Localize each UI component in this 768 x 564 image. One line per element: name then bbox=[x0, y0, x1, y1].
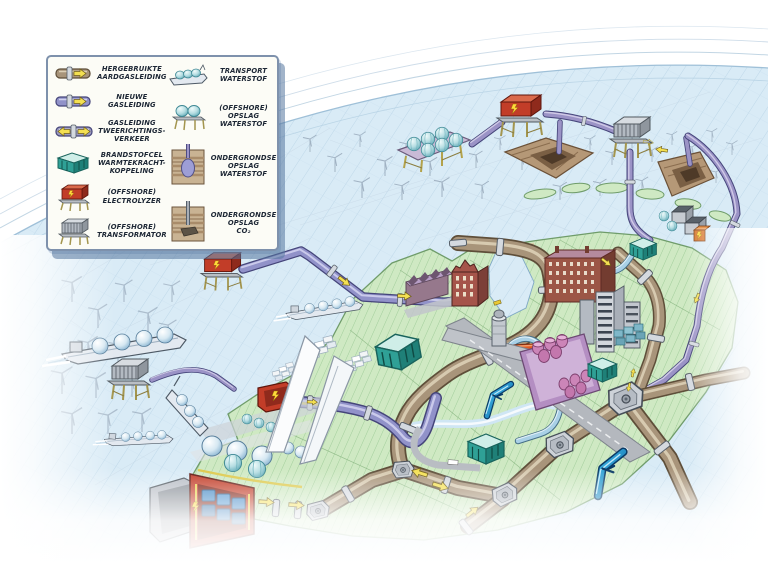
offshore-hydrogen-storage-icon bbox=[167, 101, 209, 131]
legend-item: NIEUWE GASLEIDING bbox=[53, 90, 167, 112]
reused-gas-pipeline-icon bbox=[53, 62, 95, 84]
legend-item: GASLEIDING TWEERICHTINGS- VERKEER bbox=[53, 119, 167, 144]
legend-item: (OFFSHORE) TRANSFORMATOR bbox=[53, 217, 167, 245]
legend-item: TRANSPORT WATERSTOF bbox=[167, 62, 277, 88]
hydrogen-transport-ship-icon bbox=[167, 62, 209, 88]
legend-label: BRANDSTOFCEL WARMTEKRACHT- KOPPELING bbox=[97, 151, 167, 176]
new-gas-pipeline-icon bbox=[53, 90, 95, 112]
legend-item: (OFFSHORE) ELECTROLYZER bbox=[53, 183, 167, 211]
legend-label: GASLEIDING TWEERICHTINGS- VERKEER bbox=[97, 119, 167, 144]
underground-co2-storage-icon bbox=[167, 201, 209, 245]
legend-label: TRANSPORT WATERSTOF bbox=[211, 67, 277, 84]
legend-label: (OFFSHORE) ELECTROLYZER bbox=[97, 188, 167, 205]
legend-label: (OFFSHORE) OPSLAG WATERSTOF bbox=[211, 104, 277, 129]
legend-item: HERGEBRUIKTE AARDGASLEIDING bbox=[53, 62, 167, 84]
underground-hydrogen-storage-icon bbox=[167, 144, 209, 188]
legend-label: (OFFSHORE) TRANSFORMATOR bbox=[97, 223, 167, 240]
legend-label: NIEUWE GASLEIDING bbox=[97, 93, 167, 110]
legend-item: BRANDSTOFCEL WARMTEKRACHT- KOPPELING bbox=[53, 150, 167, 176]
left-fade bbox=[0, 235, 115, 564]
bottom-fade bbox=[0, 468, 768, 564]
water-tower bbox=[492, 310, 506, 346]
legend-label: ONDERGRONDSE OPSLAG CO₂ bbox=[211, 211, 277, 236]
truck bbox=[448, 460, 458, 465]
offshore-electrolyzer-icon bbox=[53, 183, 95, 211]
legend-label: HERGEBRUIKTE AARDGASLEIDING bbox=[97, 65, 167, 82]
illustration-canvas: HERGEBRUIKTE AARDGASLEIDING NIEUWE GASLE… bbox=[0, 0, 768, 564]
legend-label: ONDERGRONDSE OPSLAG WATERSTOF bbox=[211, 154, 277, 179]
legend-item: (OFFSHORE) OPSLAG WATERSTOF bbox=[167, 101, 277, 131]
legend-item: ONDERGRONDSE OPSLAG WATERSTOF bbox=[167, 144, 277, 188]
offshore-transformer-icon bbox=[53, 217, 95, 245]
legend-panel: HERGEBRUIKTE AARDGASLEIDING NIEUWE GASLE… bbox=[46, 55, 279, 251]
fuel-cell-chp-icon bbox=[53, 150, 95, 176]
legend-right-column: TRANSPORT WATERSTOF (OFFSHORE) OPSLAG WA… bbox=[167, 62, 277, 245]
legend-left-column: HERGEBRUIKTE AARDGASLEIDING NIEUWE GASLE… bbox=[53, 62, 167, 245]
right-fade bbox=[686, 228, 768, 564]
two-way-gas-pipeline-icon bbox=[53, 120, 95, 142]
legend-item: ONDERGRONDSE OPSLAG CO₂ bbox=[167, 201, 277, 245]
